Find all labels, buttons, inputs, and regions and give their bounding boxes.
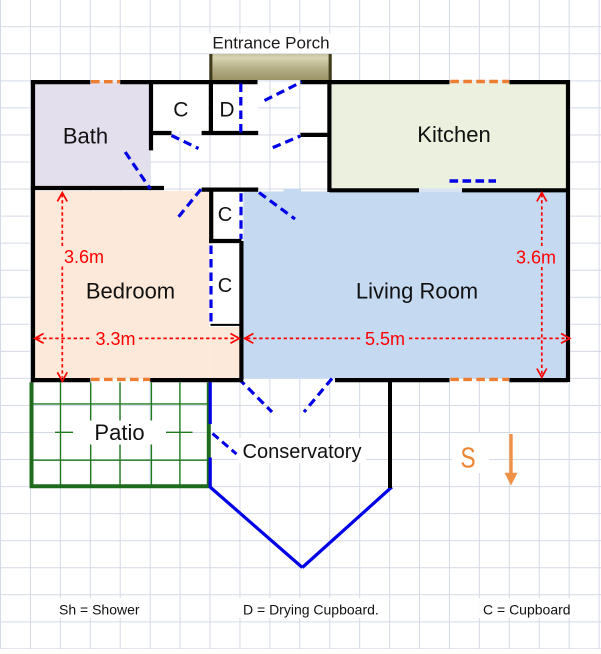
svg-text:C: C <box>218 275 232 297</box>
svg-text:Living Room: Living Room <box>356 279 478 304</box>
svg-text:3.6m: 3.6m <box>516 248 556 268</box>
svg-text:Kitchen: Kitchen <box>417 122 490 147</box>
svg-text:C: C <box>218 204 232 226</box>
svg-text:3.6m: 3.6m <box>64 247 104 267</box>
svg-text:D: D <box>219 99 234 122</box>
svg-text:Entrance Porch: Entrance Porch <box>212 34 329 53</box>
svg-text:5.5m: 5.5m <box>365 329 405 349</box>
svg-text:S: S <box>460 441 475 474</box>
svg-text:Bedroom: Bedroom <box>86 279 175 304</box>
svg-text:Conservatory: Conservatory <box>243 441 362 463</box>
svg-text:D = Drying Cupboard.: D = Drying Cupboard. <box>243 602 379 618</box>
svg-text:Patio: Patio <box>94 420 144 445</box>
svg-text:C = Cupboard: C = Cupboard <box>483 602 571 618</box>
svg-text:3.3m: 3.3m <box>95 329 135 349</box>
svg-text:C: C <box>173 99 188 122</box>
svg-text:Bath: Bath <box>63 124 108 149</box>
svg-text:Sh = Shower: Sh = Shower <box>59 602 140 618</box>
